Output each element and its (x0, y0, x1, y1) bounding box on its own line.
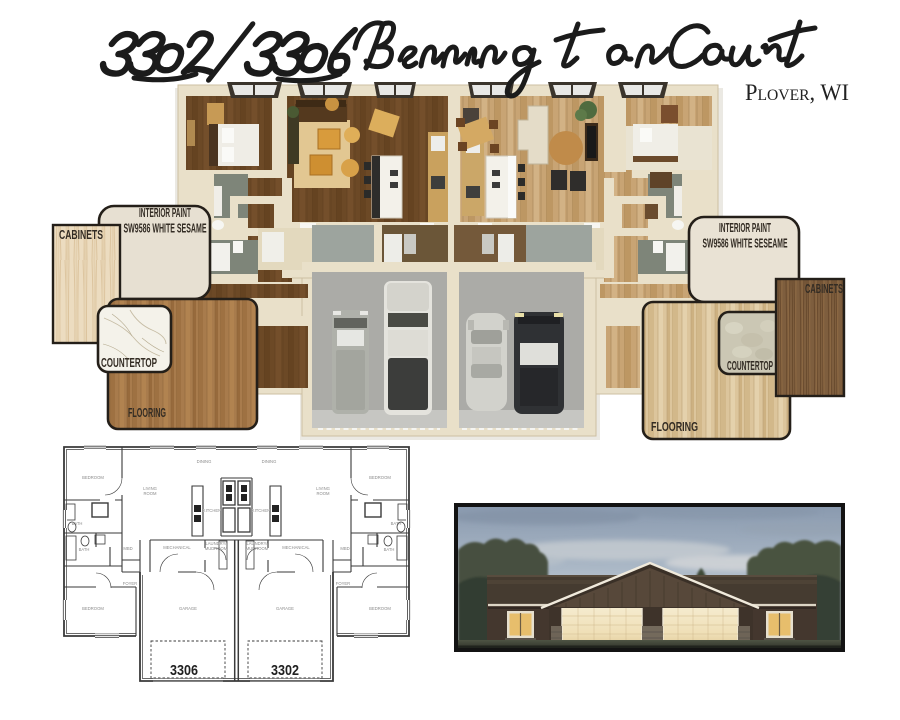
svg-text:BEDROOM: BEDROOM (369, 606, 391, 611)
svg-text:MBD: MBD (340, 546, 349, 551)
svg-text:3306: 3306 (170, 662, 198, 679)
svg-text:BEDROOM: BEDROOM (369, 475, 391, 480)
svg-text:KITCHEN: KITCHEN (203, 508, 221, 513)
svg-text:GARAGE: GARAGE (179, 606, 197, 611)
svg-text:MUDROOM: MUDROOM (205, 546, 228, 551)
svg-text:FLOORING: FLOORING (128, 405, 166, 420)
svg-text:FLOORING: FLOORING (651, 419, 698, 434)
svg-text:FOYER: FOYER (336, 581, 350, 586)
svg-text:GARAGE: GARAGE (276, 606, 294, 611)
svg-text:ROOM: ROOM (143, 491, 157, 496)
svg-text:Plover, WI: Plover, WI (745, 80, 849, 105)
svg-text:3302: 3302 (271, 662, 299, 679)
svg-text:SW9586 WHITE SESAME: SW9586 WHITE SESAME (124, 222, 207, 236)
svg-text:MBD: MBD (123, 546, 132, 551)
svg-text:BATH: BATH (72, 521, 83, 526)
svg-text:INTERIOR PAINT: INTERIOR PAINT (139, 206, 191, 220)
svg-text:KITCHEN: KITCHEN (252, 508, 270, 513)
svg-text:MECHANICAL: MECHANICAL (282, 545, 310, 550)
svg-text:ROOM: ROOM (316, 491, 330, 496)
svg-text:CABINETS: CABINETS (805, 281, 843, 296)
svg-text:BATH: BATH (79, 547, 90, 552)
svg-text:MECHANICAL: MECHANICAL (163, 545, 191, 550)
svg-text:BEDROOM: BEDROOM (82, 606, 104, 611)
svg-text:BATH: BATH (391, 521, 402, 526)
svg-text:COUNTERTOP: COUNTERTOP (727, 358, 773, 373)
svg-text:FOYER: FOYER (123, 581, 137, 586)
svg-text:BATH: BATH (384, 547, 395, 552)
svg-text:COUNTERTOP: COUNTERTOP (101, 355, 157, 370)
svg-text:DINING: DINING (197, 459, 212, 464)
svg-text:SW9586 WHITE SESEAME: SW9586 WHITE SESEAME (703, 237, 788, 251)
svg-text:INTERIOR PAINT: INTERIOR PAINT (719, 221, 771, 235)
svg-text:BEDROOM: BEDROOM (82, 475, 104, 480)
svg-text:DINING: DINING (262, 459, 277, 464)
svg-text:MUDROOM: MUDROOM (246, 546, 269, 551)
svg-text:CABINETS: CABINETS (59, 227, 103, 242)
